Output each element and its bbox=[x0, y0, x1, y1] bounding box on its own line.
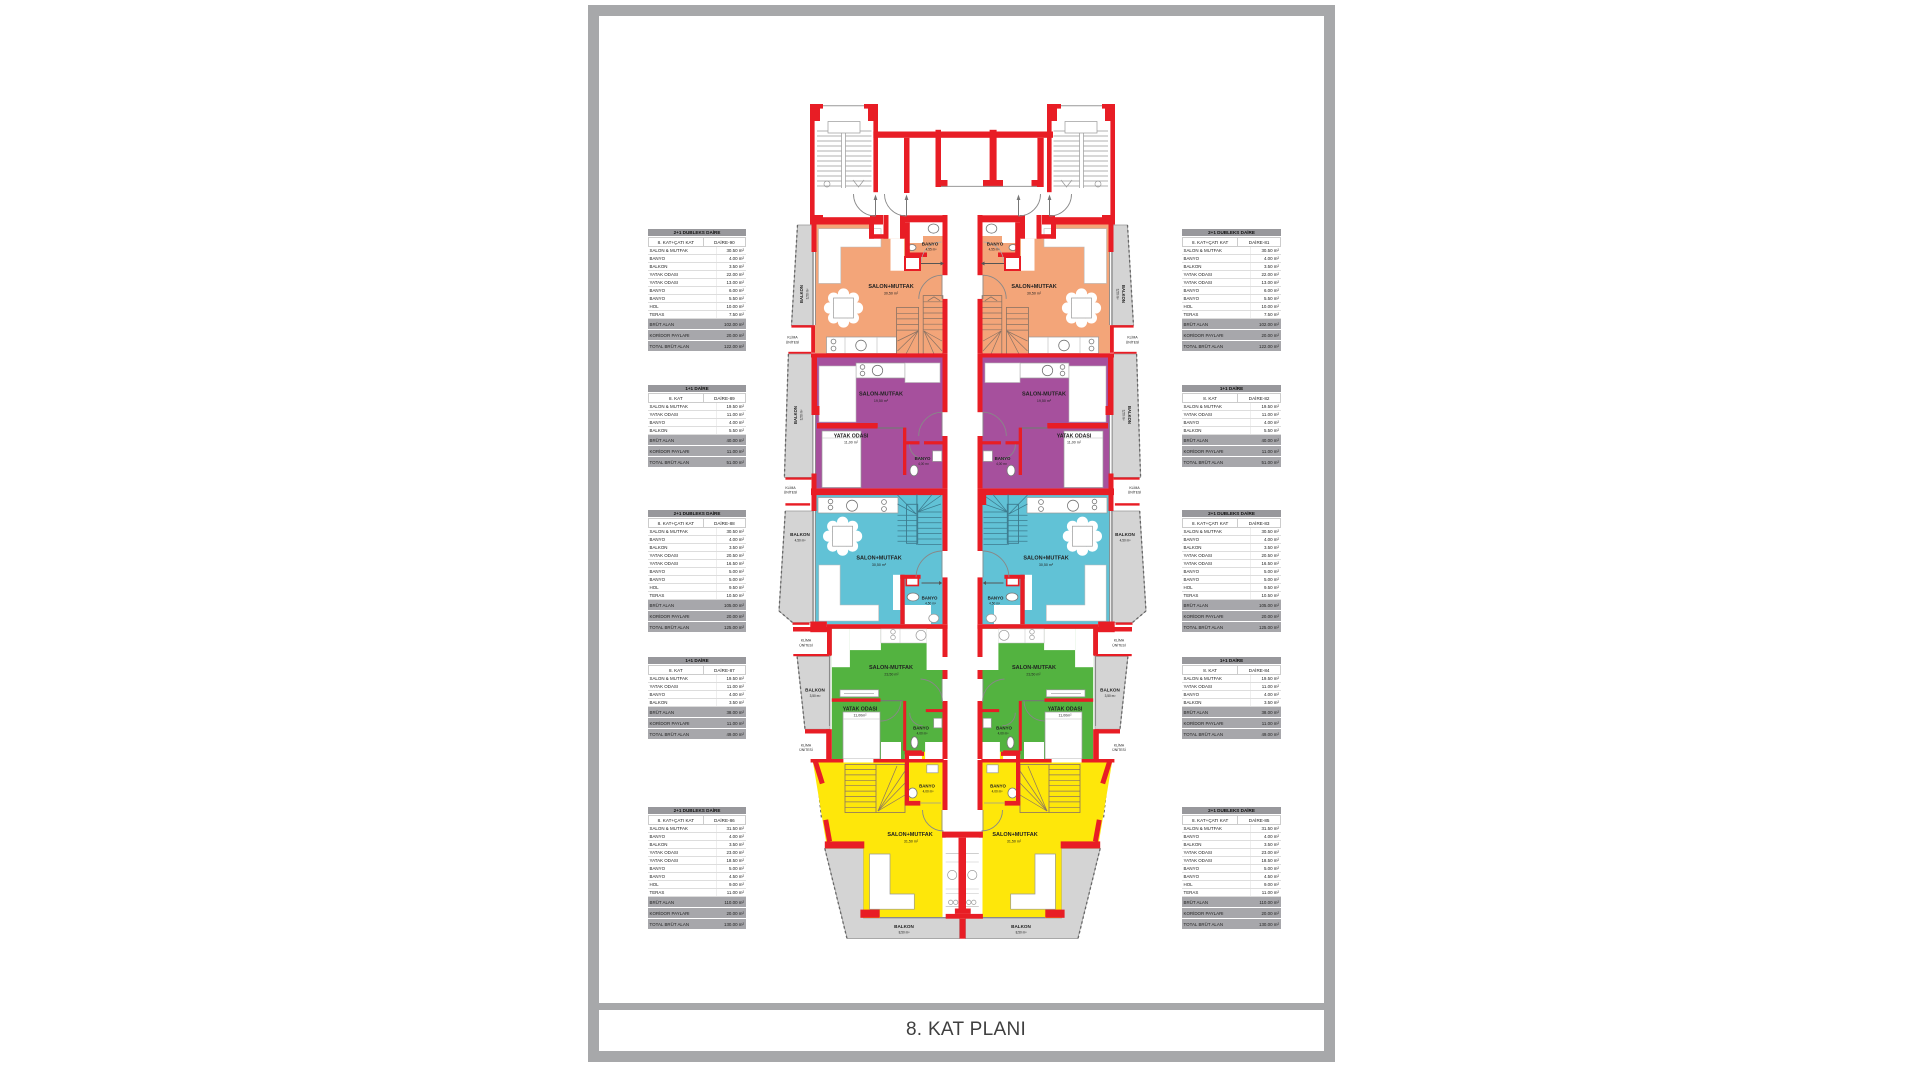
svg-text:YATAK ODASI: YATAK ODASI bbox=[843, 707, 878, 713]
svg-text:3,50 m²: 3,50 m² bbox=[810, 694, 821, 698]
svg-text:ÜNİTESİ: ÜNİTESİ bbox=[799, 643, 812, 648]
svg-text:YATAK ODASI: YATAK ODASI bbox=[1057, 434, 1092, 440]
svg-text:19,50 m²: 19,50 m² bbox=[874, 399, 889, 403]
svg-text:KLİMA: KLİMA bbox=[1127, 335, 1138, 340]
svg-text:11,00 m²: 11,00 m² bbox=[1067, 441, 1082, 445]
svg-text:4,50 m²: 4,50 m² bbox=[1120, 539, 1131, 543]
svg-text:4,55 m²: 4,55 m² bbox=[989, 248, 1000, 252]
svg-text:8,50 m²: 8,50 m² bbox=[1016, 931, 1027, 935]
svg-text:4,55 m²: 4,55 m² bbox=[926, 248, 937, 252]
svg-text:4,50 m²: 4,50 m² bbox=[925, 602, 936, 606]
svg-text:YATAK ODASI: YATAK ODASI bbox=[1048, 707, 1083, 713]
svg-text:BANYO: BANYO bbox=[913, 726, 929, 731]
svg-text:19,50 m²: 19,50 m² bbox=[1037, 399, 1052, 403]
svg-text:11,00m²: 11,00m² bbox=[854, 714, 868, 718]
svg-text:3,50 m²: 3,50 m² bbox=[800, 410, 804, 421]
svg-text:3,50 m²: 3,50 m² bbox=[1116, 289, 1120, 300]
svg-text:11,00m²: 11,00m² bbox=[1059, 714, 1073, 718]
svg-text:BALKON: BALKON bbox=[1121, 285, 1126, 303]
svg-text:ÜNİTESİ: ÜNİTESİ bbox=[1112, 643, 1125, 648]
svg-text:BALKON: BALKON bbox=[790, 532, 810, 537]
svg-text:KLİMA: KLİMA bbox=[1114, 743, 1125, 748]
svg-text:BANYO: BANYO bbox=[922, 596, 938, 601]
svg-text:BALKON: BALKON bbox=[1100, 688, 1120, 693]
svg-text:4,50 m²: 4,50 m² bbox=[795, 539, 806, 543]
svg-text:BANYO: BANYO bbox=[987, 242, 1004, 247]
svg-text:11,00 m²: 11,00 m² bbox=[844, 441, 859, 445]
svg-text:23,50 m²: 23,50 m² bbox=[1026, 673, 1041, 677]
svg-text:BANYO: BANYO bbox=[915, 456, 931, 461]
svg-text:SALON-MUTFAK: SALON-MUTFAK bbox=[1022, 392, 1066, 398]
svg-text:BANYO: BANYO bbox=[919, 784, 935, 789]
svg-text:3,50 m²: 3,50 m² bbox=[1122, 410, 1126, 421]
svg-text:23,50 m²: 23,50 m² bbox=[884, 673, 899, 677]
svg-text:4,00 m²: 4,00 m² bbox=[918, 462, 929, 466]
svg-text:BANYO: BANYO bbox=[990, 784, 1006, 789]
svg-text:BALKON: BALKON bbox=[799, 285, 804, 303]
svg-text:30,50 m²: 30,50 m² bbox=[1039, 563, 1054, 567]
svg-text:KLİMA: KLİMA bbox=[1114, 638, 1125, 643]
svg-text:BANYO: BANYO bbox=[996, 726, 1012, 731]
svg-text:8,50 m²: 8,50 m² bbox=[899, 931, 910, 935]
svg-text:BALKON: BALKON bbox=[1127, 406, 1132, 424]
svg-text:BALKON: BALKON bbox=[805, 688, 825, 693]
svg-text:SALON-MUTFAK: SALON-MUTFAK bbox=[1012, 665, 1056, 671]
svg-text:4,00 m²: 4,00 m² bbox=[992, 790, 1003, 794]
svg-text:4,00 m²: 4,00 m² bbox=[923, 790, 934, 794]
svg-text:KLİMA: KLİMA bbox=[801, 638, 812, 643]
svg-text:ÜNİTESİ: ÜNİTESİ bbox=[799, 747, 812, 752]
svg-text:ÜNİTESİ: ÜNİTESİ bbox=[1128, 490, 1141, 495]
svg-text:30,50 m²: 30,50 m² bbox=[1027, 292, 1042, 296]
svg-text:4,00 m²: 4,00 m² bbox=[917, 732, 928, 736]
svg-text:30,50 m²: 30,50 m² bbox=[872, 563, 887, 567]
svg-text:SALON+MUTFAK: SALON+MUTFAK bbox=[1011, 284, 1056, 290]
svg-text:31,50 m²: 31,50 m² bbox=[1007, 840, 1022, 844]
svg-text:BALKON: BALKON bbox=[1011, 924, 1031, 929]
svg-text:4,50 m²: 4,50 m² bbox=[989, 602, 1000, 606]
svg-text:SALON+MUTFAK: SALON+MUTFAK bbox=[868, 284, 913, 290]
svg-text:ÜNİTESİ: ÜNİTESİ bbox=[1112, 747, 1125, 752]
svg-text:4,00 m²: 4,00 m² bbox=[998, 732, 1009, 736]
svg-text:KLİMA: KLİMA bbox=[801, 743, 812, 748]
svg-text:KLİMA: KLİMA bbox=[1129, 485, 1140, 490]
svg-text:ÜNİTESİ: ÜNİTESİ bbox=[786, 340, 799, 345]
svg-text:3,50 m²: 3,50 m² bbox=[806, 289, 810, 300]
svg-text:YATAK ODASI: YATAK ODASI bbox=[834, 434, 869, 440]
svg-text:BALKON: BALKON bbox=[894, 924, 914, 929]
svg-text:SALON+MUTFAK: SALON+MUTFAK bbox=[1023, 556, 1068, 562]
svg-text:ÜNİTESİ: ÜNİTESİ bbox=[1126, 340, 1139, 345]
svg-text:KLİMA: KLİMA bbox=[785, 485, 796, 490]
svg-text:30,50 m²: 30,50 m² bbox=[884, 292, 899, 296]
svg-text:BALKON: BALKON bbox=[793, 406, 798, 424]
svg-text:31,50 m²: 31,50 m² bbox=[904, 840, 919, 844]
svg-text:BANYO: BANYO bbox=[988, 596, 1004, 601]
svg-text:BANYO: BANYO bbox=[995, 456, 1011, 461]
svg-text:3,50 m²: 3,50 m² bbox=[1105, 694, 1116, 698]
svg-text:SALON-MUTFAK: SALON-MUTFAK bbox=[869, 665, 913, 671]
svg-text:KLİMA: KLİMA bbox=[787, 335, 798, 340]
svg-text:SALON+MUTFAK: SALON+MUTFAK bbox=[887, 832, 932, 838]
svg-text:BALKON: BALKON bbox=[1115, 532, 1135, 537]
svg-text:SALON+MUTFAK: SALON+MUTFAK bbox=[856, 556, 901, 562]
svg-text:4,00 m²: 4,00 m² bbox=[996, 462, 1007, 466]
svg-text:SALON-MUTFAK: SALON-MUTFAK bbox=[859, 392, 903, 398]
svg-text:SALON+MUTFAK: SALON+MUTFAK bbox=[992, 832, 1037, 838]
svg-text:BANYO: BANYO bbox=[922, 242, 939, 247]
svg-text:ÜNİTESİ: ÜNİTESİ bbox=[784, 490, 797, 495]
